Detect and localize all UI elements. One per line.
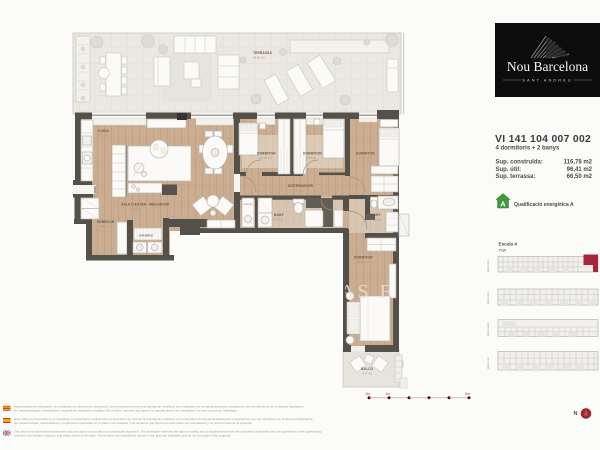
svg-text:7,55 m2: 7,55 m2	[306, 156, 317, 160]
svg-text:BALCÓ: BALCÓ	[361, 366, 374, 371]
svg-text:Sup. construïda:: Sup. construïda:	[496, 160, 543, 166]
svg-text:4,23 m2: 4,23 m2	[273, 218, 284, 222]
svg-text:DORMITOR: DORMITOR	[354, 256, 373, 260]
svg-text:planta dos: planta dos	[486, 291, 490, 304]
svg-text:4,10 m2: 4,10 m2	[371, 218, 382, 222]
svg-text:TERRASSA: TERRASSA	[253, 51, 272, 55]
svg-text:Escala 4: Escala 4	[499, 242, 518, 247]
svg-text:Qualificació energètica A: Qualificació energètica A	[514, 202, 574, 208]
svg-text:7,41 m2: 7,41 m2	[293, 189, 304, 193]
svg-text:DORMITOR: DORMITOR	[303, 152, 322, 156]
svg-text:8,75 m2: 8,75 m2	[98, 134, 109, 138]
svg-text:celosia: celosia	[401, 360, 404, 368]
svg-text:las características, distribuc: las características, distribuciones y su…	[14, 421, 252, 425]
svg-text:7º2ª: 7º2ª	[499, 248, 507, 253]
svg-text:SANT ANDREU: SANT ANDREU	[522, 78, 572, 83]
svg-text:architect, the features, layou: architect, the features, layouts, and ar…	[14, 434, 231, 438]
svg-text:1m: 1m	[386, 392, 391, 396]
svg-text:Sup. útil:: Sup. útil:	[496, 167, 522, 173]
svg-text:4,57 m2: 4,57 m2	[362, 372, 373, 376]
svg-text:N: N	[574, 411, 578, 417]
svg-text:96,41 m2: 96,41 m2	[567, 167, 593, 173]
svg-text:SALA D'ESTAR - MENJADOR: SALA D'ESTAR - MENJADOR	[121, 203, 169, 207]
svg-text:4,69 m2: 4,69 m2	[99, 225, 110, 229]
svg-text:planta cinc: planta cinc	[486, 356, 490, 369]
svg-text:27,57 m2: 27,57 m2	[130, 207, 142, 211]
svg-text:VI 141 104 007 002: VI 141 104 007 002	[495, 134, 591, 145]
svg-text:A: A	[500, 200, 506, 209]
svg-text:planta tres: planta tres	[486, 259, 490, 272]
svg-text:BANY: BANY	[371, 213, 381, 217]
svg-text:SAFAREIG: SAFAREIG	[139, 234, 153, 238]
svg-text:les característiques, distribu: les característiques, distribucions i su…	[14, 409, 238, 413]
svg-text:10,50 m2: 10,50 m2	[357, 260, 369, 264]
svg-text:DISTRIBUIDOR: DISTRIBUIDOR	[288, 184, 314, 188]
svg-text:REBEDOR: REBEDOR	[97, 220, 115, 224]
svg-text:10,20 m2: 10,20 m2	[260, 156, 272, 160]
svg-text:CUINA: CUINA	[98, 129, 109, 133]
svg-text:4 dormitoris + 2 banys: 4 dormitoris + 2 banys	[496, 146, 561, 152]
svg-text:DORMITOR: DORMITOR	[257, 152, 276, 156]
svg-text:116,78 m2: 116,78 m2	[564, 160, 593, 166]
svg-text:8,10 m2: 8,10 m2	[359, 156, 370, 160]
svg-text:66,50 m2: 66,50 m2	[253, 56, 265, 60]
svg-text:Sup. terrassa:: Sup. terrassa:	[496, 174, 536, 180]
svg-text:DORMITOR: DORMITOR	[356, 152, 375, 156]
svg-text:BANY: BANY	[274, 213, 284, 217]
svg-text:66,50 m2: 66,50 m2	[567, 174, 593, 180]
svg-text:0m: 0m	[366, 392, 371, 396]
svg-text:5m: 5m	[465, 392, 470, 396]
svg-text:planta quart: planta quart	[486, 322, 490, 336]
svg-text:Nou Barcelona: Nou Barcelona	[507, 59, 588, 74]
svg-text:RENTAD.: RENTAD.	[244, 203, 254, 206]
